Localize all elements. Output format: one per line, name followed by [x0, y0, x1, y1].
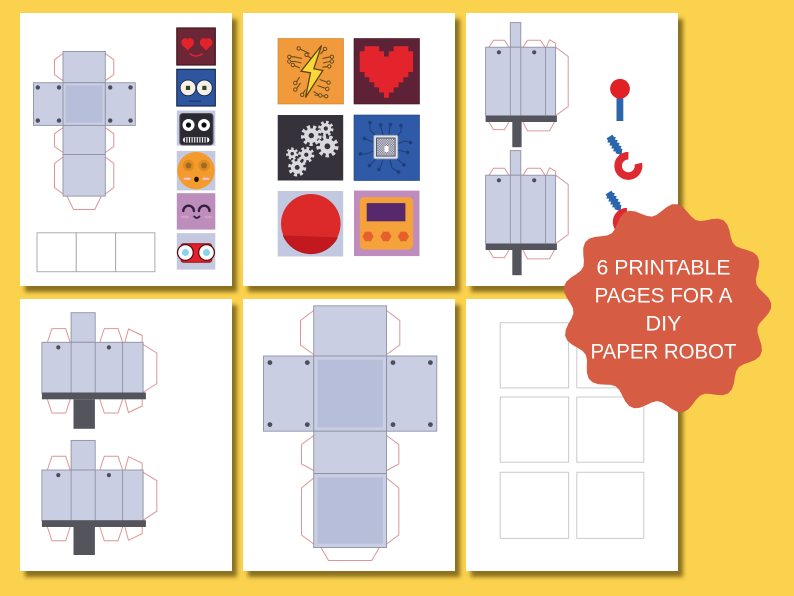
svg-text:PAGES FOR A: PAGES FOR A [595, 283, 734, 308]
svg-text:DIY: DIY [646, 311, 682, 336]
svg-text:6 PRINTABLE: 6 PRINTABLE [597, 255, 731, 280]
svg-text:PAPER ROBOT: PAPER ROBOT [591, 339, 737, 364]
